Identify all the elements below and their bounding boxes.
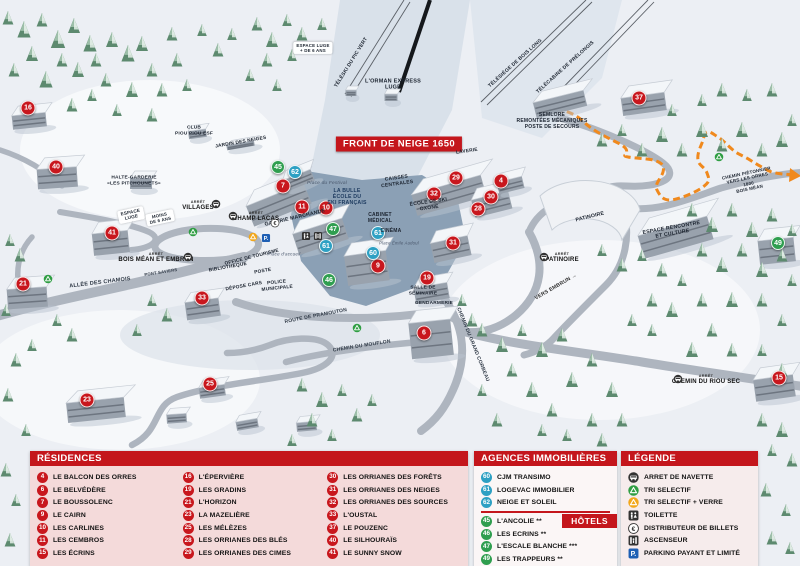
legend-label: LES ORRIANES DES SOURCES — [343, 499, 448, 506]
bus-icon — [540, 253, 549, 262]
agences-list: 60CJM TRANSIMO61LOGEVAC IMMOBILIER62NEIG… — [474, 466, 617, 566]
legend-label: LES CEMBROS — [53, 537, 104, 544]
legend-marker-7: 7 — [37, 497, 48, 508]
residences-column: 30LES ORRIANES DES FORÊTS31LES ORRIANES … — [327, 471, 461, 563]
hotel-item: 46LES ECRINS ** — [481, 528, 610, 541]
parking-icon: P. — [628, 548, 639, 559]
map-label: CHEMIN DU GRAND CORBEAU — [454, 307, 489, 383]
legend-label: LES ORRIANES DES BLÉS — [199, 537, 288, 544]
map-label: LA BULLE ÉCOLE DU SKI FRANÇAIS — [327, 188, 366, 206]
map-marker-60: 60 — [366, 246, 380, 260]
residence-item: 21L'HORIZON — [183, 496, 328, 509]
legend-label: LE SUNNY SNOW — [343, 550, 402, 557]
legend-label: LES ORRIANES DES CIMES — [199, 550, 291, 557]
legend-label: LE BOUSSOLENC — [53, 499, 113, 506]
bus-stop-name: PATINOIRE — [545, 257, 579, 263]
bus-stop: ARRÊTVILLAGES — [182, 201, 214, 211]
legend-label: LES MÉLÈZES — [199, 525, 247, 532]
map-label: ALLÉE DES CHAMOIS — [69, 276, 131, 290]
bus-stop: ARRÊTPATINOIRE — [545, 253, 579, 263]
map-marker-45: 45 — [271, 160, 285, 174]
legende-item: TRI SELECTIF + VERRE — [628, 496, 751, 509]
residence-item: 10LES CARLINES — [37, 522, 183, 535]
legend-label: L'HORIZON — [199, 499, 237, 506]
resort-map: FRONT DE NEIGE 1650 16404121332325711109… — [0, 0, 800, 566]
legend-marker-9: 9 — [37, 510, 48, 521]
legend-marker-31: 31 — [327, 485, 338, 496]
legend-marker-33: 33 — [327, 510, 338, 521]
legend-label: LE POUZENC — [343, 525, 388, 532]
legend-label: LE CAIRN — [53, 512, 86, 519]
legende-label: ASCENSEUR — [644, 537, 688, 544]
map-label: Place Émile Audoul — [379, 242, 419, 247]
legende-label: PARKING PAYANT ET LIMITÉ — [644, 550, 740, 557]
map-label: CLUB PIOU PIOU ESF — [175, 125, 213, 136]
legend-label: LA MAZELIÈRE — [199, 512, 250, 519]
hotel-item: 49LES TRAPPEURS ** — [481, 553, 610, 566]
legend-label: LOGEVAC IMMOBILIER — [497, 487, 575, 494]
legend-marker-46: 46 — [481, 529, 492, 540]
map-label: SEMLORE REMONTÉES MÉCANIQUES POSTE DE SE… — [517, 113, 588, 131]
map-marker-41: 41 — [105, 226, 120, 241]
map-label: VERS EMBRUN → — [534, 272, 578, 301]
map-marker-19: 19 — [420, 271, 435, 286]
map-label: GENDARMERIE — [415, 301, 453, 307]
map-marker-7: 7 — [276, 179, 291, 194]
legend-label: LES GRADINS — [199, 487, 247, 494]
recycle-green-icon — [44, 275, 53, 284]
svg-text:P.: P. — [631, 551, 637, 558]
map-marker-9: 9 — [371, 259, 386, 274]
legende-list: ARRET DE NAVETTETRI SELECTIFTRI SELECTIF… — [621, 466, 758, 566]
map-label: MOINS DE 6 ANS — [145, 209, 175, 227]
residence-item: 28LES ORRIANES DES BLÉS — [183, 534, 328, 547]
map-label: Place d'accueil — [268, 251, 301, 256]
residence-item: 25LES MÉLÈZES — [183, 522, 328, 535]
legende-label: TRI SELECTIF — [644, 487, 691, 494]
bus-icon — [628, 472, 639, 483]
map-label: CHEMIN DU MOUFLON — [333, 340, 392, 355]
legende-label: ARRET DE NAVETTE — [644, 474, 713, 481]
legend-label: LES CARLINES — [53, 525, 104, 532]
map-label: JARDIN DES NEIGES — [215, 136, 267, 151]
map-marker-33: 33 — [195, 291, 210, 306]
legend-label: L'ÉPERVIÈRE — [199, 474, 245, 481]
bus-stop: ARRÊTBOIS MÉAN ET EMBRUN — [118, 253, 193, 263]
legend-marker-6: 6 — [37, 485, 48, 496]
legend-label: LE BALCON DES ORRES — [53, 474, 136, 481]
legend-label: LES ORRIANES DES NEIGES — [343, 487, 440, 494]
bus-icon — [229, 212, 238, 221]
legend-label: L'ANCOLIE ** — [497, 518, 542, 525]
legende-item: ASCENSEUR — [628, 534, 751, 547]
legend-label: LES ORRIANES DES FORÊTS — [343, 474, 442, 481]
residences-column: 16L'ÉPERVIÈRE19LES GRADINS21L'HORIZON23L… — [183, 471, 328, 563]
svg-text:€: € — [632, 525, 636, 532]
map-title-banner: FRONT DE NEIGE 1650 — [336, 137, 462, 152]
hotels-header: HÔTELS — [562, 514, 617, 528]
map-label: ÉCOLE DE SKI OXONE — [410, 198, 449, 215]
legende-item: TOILETTE — [628, 509, 751, 522]
recycle-yellow-icon — [628, 497, 639, 508]
map-marker-61: 61 — [319, 239, 333, 253]
agences-header: AGENCES IMMOBILIÈRES — [474, 451, 617, 466]
recycle-yellow-icon — [249, 233, 258, 242]
map-marker-62: 62 — [288, 165, 302, 179]
residence-item: 6LE BELVÉDÈRE — [37, 484, 183, 497]
bus-icon — [212, 200, 221, 209]
residence-item: 32LES ORRIANES DES SOURCES — [327, 496, 461, 509]
recycle-green-icon — [353, 324, 362, 333]
legend-marker-21: 21 — [183, 497, 194, 508]
recycle-green-icon — [715, 153, 724, 162]
map-marker-37: 37 — [632, 91, 647, 106]
legend-marker-47: 47 — [481, 541, 492, 552]
map-marker-40: 40 — [49, 160, 64, 175]
legende-item: P.PARKING PAYANT ET LIMITÉ — [628, 547, 751, 560]
legend-marker-29: 29 — [183, 548, 194, 559]
residence-item: 31LES ORRIANES DES NEIGES — [327, 484, 461, 497]
map-marker-6: 6 — [417, 326, 432, 341]
legend-marker-45: 45 — [481, 516, 492, 527]
parking-icon: P. — [262, 234, 271, 243]
legend-key: LÉGENDE ARRET DE NAVETTETRI SELECTIFTRI … — [621, 451, 758, 566]
residence-item: 4LE BALCON DES ORRES — [37, 471, 183, 484]
legend-marker-49: 49 — [481, 554, 492, 565]
map-label: ESPACE LUGE + DE 6 ANS — [293, 42, 332, 54]
legend-marker-61: 61 — [481, 485, 492, 496]
map-marker-31: 31 — [446, 236, 461, 251]
legend-label: LE BELVÉDÈRE — [53, 487, 106, 494]
residences-column: 4LE BALCON DES ORRES6LE BELVÉDÈRE7LE BOU… — [37, 471, 183, 563]
map-label: POSTE — [254, 268, 272, 277]
map-label: HALTE-GARDERIE «LES PITCHOUNETS» — [107, 175, 161, 186]
map-label: TÉLÉCABINE DE PRÉLONGIS — [536, 40, 596, 95]
map-label: POLICE MUNICIPALE — [261, 279, 294, 294]
recycle-green-icon — [628, 485, 639, 496]
residence-item: 30LES ORRIANES DES FORÊTS — [327, 471, 461, 484]
map-marker-15: 15 — [772, 371, 787, 386]
residence-item: 37LE POUZENC — [327, 522, 461, 535]
legend-marker-30: 30 — [327, 472, 338, 483]
map-marker-46: 46 — [322, 273, 336, 287]
bus-stop: ARRÊTCHAMP LACAS — [233, 212, 279, 222]
map-marker-16: 16 — [21, 101, 36, 116]
bus-stop-name: VILLAGES — [182, 205, 214, 211]
agency-item: 62NEIGE ET SOLEIL — [481, 496, 610, 509]
legend-marker-16: 16 — [183, 472, 194, 483]
toilet-icon — [628, 510, 639, 521]
bus-stop-name: CHAMP LACAS — [233, 216, 279, 222]
legend-marker-40: 40 — [327, 535, 338, 546]
elevator-icon — [628, 535, 639, 546]
svg-text:P.: P. — [264, 236, 269, 242]
map-marker-23: 23 — [80, 393, 95, 408]
legend-label: CJM TRANSIMO — [497, 474, 551, 481]
legende-label: TRI SELECTIF + VERRE — [644, 499, 723, 506]
toilet-icon — [302, 232, 311, 241]
bus-icon — [674, 375, 683, 384]
legend-label: LES ECRINS ** — [497, 531, 546, 538]
legend-marker-23: 23 — [183, 510, 194, 521]
legende-header: LÉGENDE — [621, 451, 758, 466]
agency-item: 61LOGEVAC IMMOBILIER — [481, 484, 610, 497]
map-label: CINÉMA — [381, 229, 402, 235]
legend-label: LES TRAPPEURS ** — [497, 556, 563, 563]
residence-item: 40LE SILHOURAÏS — [327, 534, 461, 547]
residence-item: 29LES ORRIANES DES CIMES — [183, 547, 328, 560]
legende-label: TOILETTE — [644, 512, 678, 519]
legend-label: L'ESCALE BLANCHE *** — [497, 543, 577, 550]
residence-item: 9LE CAIRN — [37, 509, 183, 522]
map-label: PONT SAVIERS — [144, 268, 178, 278]
residence-item: 41LE SUNNY SNOW — [327, 547, 461, 560]
legende-label: DISTRIBUTEUR DE BILLETS — [644, 525, 738, 532]
legend-marker-62: 62 — [481, 497, 492, 508]
bus-stop-name: BOIS MÉAN ET EMBRUN — [118, 257, 193, 263]
map-marker-21: 21 — [16, 277, 31, 292]
map-marker-25: 25 — [203, 377, 218, 392]
map-marker-28: 28 — [471, 202, 486, 217]
map-marker-47: 47 — [326, 222, 340, 236]
legend-marker-60: 60 — [481, 472, 492, 483]
map-label: ESPACE RENCONTRE ET CULTURE — [642, 220, 702, 242]
map-label: ROUTE DE PRAMOUTON — [284, 308, 347, 326]
legend-agences: AGENCES IMMOBILIÈRES 60CJM TRANSIMO61LOG… — [474, 451, 617, 566]
map-label: CABINET MÉDICAL — [368, 213, 392, 225]
map-marker-4: 4 — [494, 174, 509, 189]
legend-label: LES ÉCRINS — [53, 550, 95, 557]
bus-icon — [184, 253, 193, 262]
legende-item: TRI SELECTIF — [628, 484, 751, 497]
hotel-item: 47L'ESCALE BLANCHE *** — [481, 540, 610, 553]
map-marker-49: 49 — [771, 236, 785, 250]
map-label: PATINOIRE — [575, 210, 605, 223]
legend-marker-28: 28 — [183, 535, 194, 546]
map-label: L'ORMAN EXPRESS LUGE — [365, 79, 421, 92]
map-label: TÉLÉSIÈGE DE BOIS LONG — [488, 38, 544, 89]
legend-residences: RÉSIDENCES 4LE BALCON DES ORRES6LE BELVÉ… — [30, 451, 468, 566]
legend-label: L'OUSTAL — [343, 512, 377, 519]
map-marker-29: 29 — [449, 171, 464, 186]
legend-marker-41: 41 — [327, 548, 338, 559]
residence-item: 33L'OUSTAL — [327, 509, 461, 522]
map-label: CAISSES CENTRALES — [380, 174, 414, 190]
euro-icon: € — [628, 523, 639, 534]
map-label: CHEMIN PIÉTONNIER VERS LES ORRES 1800 BO… — [720, 165, 775, 197]
legend-marker-4: 4 — [37, 472, 48, 483]
hotels-section: HÔTELS 45L'ANCOLIE **46LES ECRINS **47L'… — [481, 511, 610, 566]
residences-header: RÉSIDENCES — [30, 451, 468, 466]
elevator-icon — [314, 232, 323, 241]
legend-marker-37: 37 — [327, 523, 338, 534]
map-label: ESPACE LUGE — [117, 206, 145, 224]
residence-item: 15LES ÉCRINS — [37, 547, 183, 560]
legend-marker-15: 15 — [37, 548, 48, 559]
residence-item: 7LE BOUSSOLENC — [37, 496, 183, 509]
agency-item: 60CJM TRANSIMO — [481, 471, 610, 484]
legend-marker-10: 10 — [37, 523, 48, 534]
residences-list: 4LE BALCON DES ORRES6LE BELVÉDÈRE7LE BOU… — [30, 466, 468, 566]
legend-marker-25: 25 — [183, 523, 194, 534]
residence-item: 19LES GRADINS — [183, 484, 328, 497]
map-marker-30: 30 — [484, 190, 499, 205]
legende-item: €DISTRIBUTEUR DE BILLETS — [628, 522, 751, 535]
legend-marker-11: 11 — [37, 535, 48, 546]
map-label: SALLE DE SÉMINAIRE — [409, 285, 437, 296]
residence-item: 11LES CEMBROS — [37, 534, 183, 547]
legend-label: NEIGE ET SOLEIL — [497, 499, 557, 506]
recycle-green-icon — [189, 228, 198, 237]
legend-marker-19: 19 — [183, 485, 194, 496]
map-label: DÉPOSE CARS — [225, 281, 263, 293]
residence-item: 16L'ÉPERVIÈRE — [183, 471, 328, 484]
map-label: Place du Festival — [307, 181, 347, 187]
legende-item: ARRET DE NAVETTE — [628, 471, 751, 484]
residence-item: 23LA MAZELIÈRE — [183, 509, 328, 522]
legend-marker-32: 32 — [327, 497, 338, 508]
legend-label: LE SILHOURAÏS — [343, 537, 397, 544]
